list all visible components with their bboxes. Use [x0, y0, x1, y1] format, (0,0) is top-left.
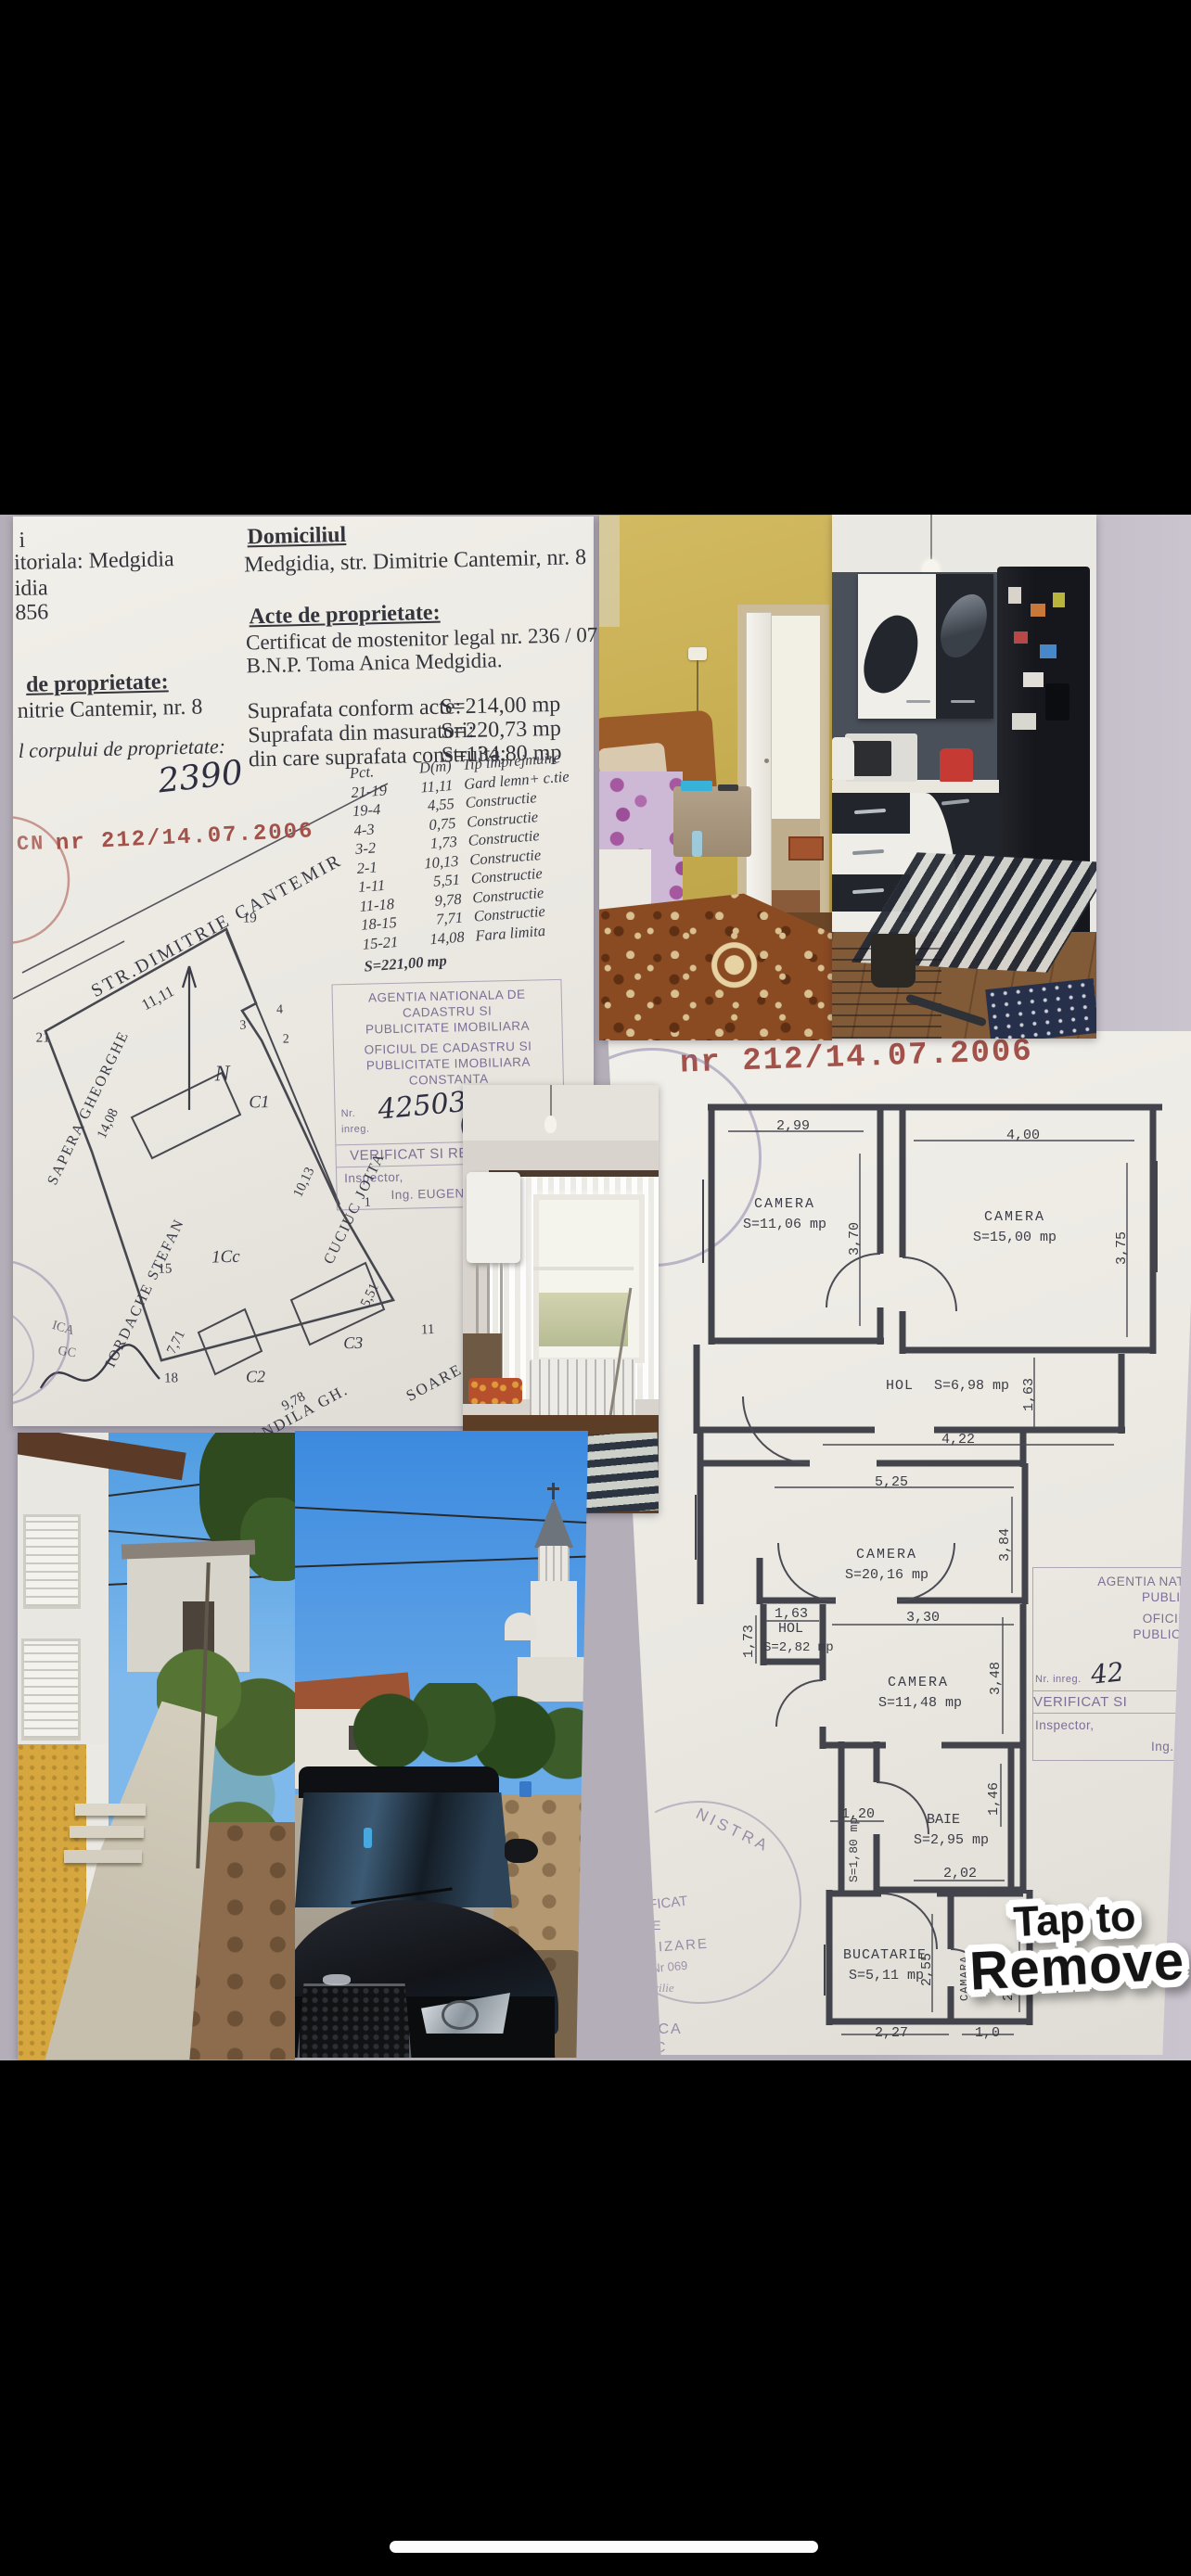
verified-line: VERIFICAT SI	[1033, 1690, 1191, 1714]
doc-fragment: nitrie Cantemir, nr. 8	[17, 695, 202, 724]
street-dim: 11,11	[138, 982, 177, 1014]
room-name: CAMERA	[984, 1209, 1045, 1225]
bedroom-wall-corner	[599, 516, 620, 627]
church-cross-bar	[547, 1487, 559, 1490]
headlight-ring	[442, 2000, 479, 2030]
car-windshield	[295, 1792, 512, 1907]
room-dim: 1,63	[775, 1606, 808, 1622]
fridge-dispenser	[1045, 683, 1069, 721]
room-name: BUCATARIE	[843, 1947, 927, 1963]
church-drum	[538, 1546, 570, 1583]
room-dim: 1,73	[741, 1625, 757, 1658]
area-value: S=214,00 mp	[440, 693, 560, 720]
room-dim: 3,30	[906, 1610, 940, 1626]
boiler	[467, 1172, 520, 1263]
room-dim: 2,99	[776, 1118, 810, 1134]
area-value: S=220,73 mp	[441, 717, 561, 744]
doc-fragment: i	[19, 529, 25, 554]
coffee-pot	[871, 934, 916, 988]
point-number: 11	[421, 1322, 435, 1338]
acts-line: B.N.P. Toma Anica Medgidia.	[246, 648, 502, 678]
room-dim: 5,25	[875, 1474, 908, 1490]
path-step	[70, 1826, 144, 1838]
room-dim: 3,70	[847, 1222, 863, 1256]
window-bar	[533, 1267, 634, 1270]
church-tower	[531, 1581, 577, 1666]
room-dim: 3,48	[988, 1662, 1004, 1695]
point-number: 2	[283, 1032, 289, 1047]
tap-to-remove-sticker[interactable]: Tap to Remove	[962, 1893, 1189, 1998]
door-handle	[764, 759, 769, 763]
photo-bedroom[interactable]	[599, 516, 832, 1040]
edge-dim: 14,08	[95, 1106, 122, 1141]
nightstand-item-dark	[718, 784, 738, 791]
room-name: CAMERA	[856, 1547, 917, 1562]
photo-house-exterior[interactable]	[18, 1433, 295, 2060]
fridge-magnet	[1012, 713, 1036, 730]
room-dim: 2,02	[943, 1866, 977, 1881]
registration-stamp: nr 212/14.07.2006	[55, 819, 314, 857]
bulb-cord	[550, 1085, 552, 1118]
round-stamp-text: A	[648, 2003, 659, 2020]
inspector-label: Inspector,	[1035, 1714, 1191, 1733]
point-number: 4	[276, 1003, 283, 1018]
room-area: S=11,48 mp	[878, 1695, 962, 1711]
car-badge	[323, 1974, 351, 1985]
house-window	[23, 1514, 81, 1609]
point-number: 3	[239, 1019, 246, 1034]
reg-label: Nr. inreg.	[1035, 1672, 1082, 1688]
home-indicator[interactable]	[390, 2541, 818, 2553]
room-name: HOL	[886, 1378, 914, 1394]
room-name: HOL	[778, 1621, 803, 1637]
cabinet-handle	[951, 700, 975, 703]
room-name: BAIE	[927, 1812, 960, 1828]
kitchen-counter	[832, 780, 999, 793]
room-area: S=5,11 mp	[849, 1968, 924, 1983]
room-dim: 3,75	[1114, 1231, 1130, 1265]
collage-image[interactable]: i itoriala: Medgidia idia 856 de proprie…	[0, 515, 1191, 2060]
nightstand	[673, 786, 751, 857]
acts-heading: Acte de proprietate:	[249, 601, 441, 630]
fridge-magnet	[1040, 644, 1057, 658]
edge-dim: 10,13	[290, 1165, 318, 1200]
point-number: 18	[164, 1371, 178, 1386]
domicile-heading: Domiciliul	[247, 523, 346, 550]
room-area: S=2,95 mp	[914, 1832, 989, 1848]
street-name: STR.DIMITRIE CANTEMIR	[88, 850, 347, 1002]
fridge-magnet	[1014, 631, 1028, 644]
church-dome	[505, 1613, 536, 1640]
room-name: CAMERA	[754, 1196, 815, 1212]
north-label: N	[214, 1062, 230, 1087]
round-stamp-arc	[598, 1801, 801, 2004]
side-mirror	[505, 1839, 538, 1863]
thermostat	[688, 647, 707, 660]
parcel-label-1cc: 1Cc	[211, 1247, 240, 1269]
parcel-label-c1: C1	[249, 1092, 270, 1113]
room-dim: 1,46	[986, 1782, 1002, 1816]
room-area: S=6,98 mp	[934, 1378, 1009, 1394]
room-area: S=15,00 mp	[973, 1230, 1057, 1245]
bulb-cord	[930, 515, 932, 563]
room-dim: 3,84	[997, 1528, 1013, 1562]
parcel-label-c2: C2	[246, 1367, 265, 1386]
drawer-front-black	[832, 793, 910, 834]
car-grille	[297, 1983, 412, 2058]
fridge-magnet	[1031, 604, 1045, 617]
inspector-name: Ing. EUGE	[1035, 1733, 1191, 1756]
round-stamp-text: rilie	[654, 1981, 674, 1996]
microwave-window	[851, 741, 891, 776]
room-area: S=2,82 mp	[763, 1640, 834, 1655]
round-stamp-text: 3C	[647, 2040, 665, 2057]
hall-rug	[788, 836, 824, 861]
path-step	[75, 1804, 146, 1816]
house-window	[21, 1639, 81, 1741]
room-dim: 1,0	[975, 2025, 1000, 2041]
neighbor-name: SAPERA GHEORGHE	[45, 1028, 133, 1188]
blue-bin	[519, 1781, 531, 1797]
toaster	[940, 748, 973, 782]
cabinet-handle	[906, 700, 930, 703]
reg-label: Nr. inreg.	[340, 1105, 373, 1138]
room-name-area: S=1,80 mp	[847, 1817, 861, 1882]
doc-fragment: idia	[14, 576, 48, 601]
water-bottle	[692, 831, 702, 857]
light-bulb	[544, 1116, 557, 1133]
fridge-magnet	[1053, 593, 1065, 607]
room-dim: 2,55	[919, 1953, 935, 1986]
edge-dim: 7,71	[164, 1328, 189, 1357]
round-stamp-text: DE	[643, 1918, 660, 1932]
windshield-bottle	[364, 1828, 372, 1848]
tap-to-remove-line2: Remove	[965, 1935, 1190, 1998]
domicile-line: Medgidia, str. Dimitrie Cantemir, nr. 8	[244, 545, 587, 578]
phone-screen: i itoriala: Medgidia idia 856 de proprie…	[0, 0, 1191, 2576]
parcel-label-c3: C3	[343, 1333, 363, 1353]
corner-office-stamp: AGENTIA NATIONA PUBLICITAT OFICIUL DE PU…	[1032, 1567, 1191, 1761]
kettle	[832, 737, 854, 780]
room-area: S=20,16 mp	[845, 1567, 928, 1583]
reg-number-handwritten: 42	[1089, 1656, 1125, 1690]
round-stamp-text: ICA	[652, 2021, 683, 2038]
doc-fragment: itoriala: Medgidia	[14, 547, 174, 575]
nightstand-item-blue	[681, 781, 712, 791]
church-spire	[534, 1498, 573, 1548]
open-door	[746, 612, 772, 918]
point-number: 1	[365, 1196, 371, 1211]
path-step	[64, 1850, 142, 1863]
stool-cushion	[468, 1378, 522, 1404]
edge-dim: 5,51	[358, 1282, 383, 1310]
point-number: 15	[158, 1261, 172, 1277]
church-cross	[552, 1483, 555, 1499]
point-number: 19	[243, 911, 257, 926]
fridge-magnet	[1008, 587, 1021, 604]
room-dim: 2,27	[875, 2025, 908, 2041]
room-dim: 4,22	[941, 1432, 975, 1447]
diamond-rug	[985, 978, 1096, 1039]
registration-stamp-prefix: CN	[17, 832, 45, 856]
fence-point-table: Pct.D(m)Tip imprejmuire 21-1911,11Gard l…	[349, 748, 583, 977]
doc-left-heading: de proprietate:	[26, 670, 169, 697]
room-area: S=11,06 mp	[743, 1217, 826, 1232]
fridge-magnet	[1023, 672, 1044, 687]
edge-stamp-fragment: ICA	[50, 1319, 76, 1339]
photo-street-car[interactable]	[295, 1431, 588, 2058]
room-name: CAMERA	[888, 1675, 949, 1690]
point-number: 21	[36, 1030, 50, 1046]
room-dim: 1,63	[1021, 1378, 1037, 1411]
edge-stamp-fragment: GC	[57, 1345, 77, 1362]
room-dim: 4,00	[1006, 1128, 1040, 1143]
window-greenery	[539, 1293, 628, 1346]
photo-kitchen[interactable]	[832, 515, 1096, 1039]
doc-fragment: 856	[15, 600, 49, 625]
handwritten-number: 2390	[156, 754, 245, 801]
